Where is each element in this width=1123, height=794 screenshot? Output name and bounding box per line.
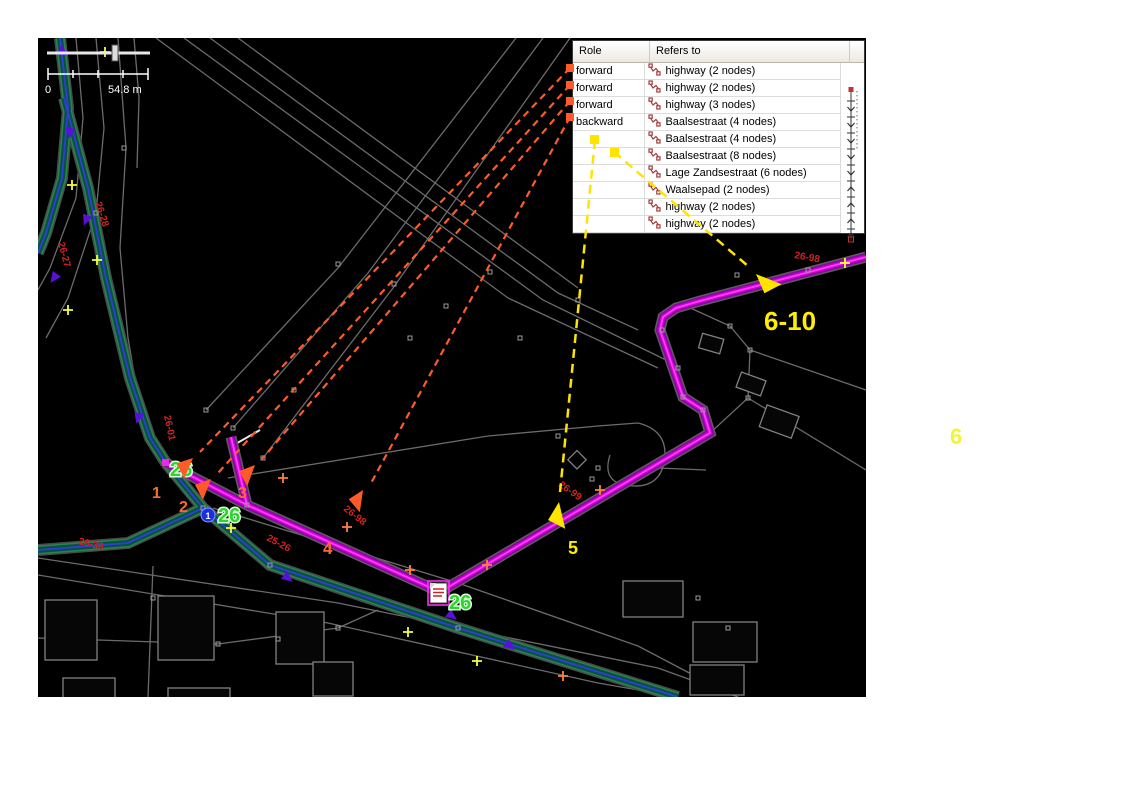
node-count-badge: 26: [449, 592, 471, 614]
member-row[interactable]: Lage Zandsestraat (6 nodes): [573, 165, 864, 182]
member-way-label: highway (2 nodes): [665, 82, 755, 94]
member-role-cell[interactable]: [573, 216, 645, 233]
member-row[interactable]: highway (2 nodes): [573, 199, 864, 216]
member-row[interactable]: Baalsestraat (8 nodes): [573, 148, 864, 165]
buildings-layer: [45, 333, 799, 697]
member-role-cell[interactable]: [573, 165, 645, 182]
way-ref-label: 26-99: [556, 479, 584, 503]
panel-header: Role Refers to: [573, 41, 864, 63]
column-header-role[interactable]: Role: [573, 41, 650, 62]
member-role-cell[interactable]: [573, 148, 645, 165]
node-count-badge: 26: [170, 459, 192, 481]
screenshot-stage: 1 0 54.8 m 26-0126-2826-2726-9825-2626-3…: [0, 0, 1123, 794]
way-icon: [648, 131, 661, 144]
step-label: 6-10: [764, 306, 816, 336]
member-way-cell[interactable]: highway (2 nodes): [645, 63, 841, 80]
step-label: 1: [152, 485, 161, 502]
member-row[interactable]: Waalsepad (2 nodes): [573, 182, 864, 199]
way-icon: [648, 182, 661, 195]
member-way-cell[interactable]: highway (2 nodes): [645, 80, 841, 97]
member-row[interactable]: highway (2 nodes): [573, 216, 864, 233]
member-role-cell[interactable]: forward: [573, 80, 645, 97]
member-way-cell[interactable]: Baalsestraat (8 nodes): [645, 148, 841, 165]
member-way-label: highway (3 nodes): [665, 99, 755, 111]
way-icon: [648, 114, 661, 127]
scale-distance-label: 54.8 m: [108, 84, 142, 96]
way-ref-label: 26-01: [161, 414, 177, 442]
member-row[interactable]: backwardBaalsestraat (4 nodes): [573, 114, 864, 131]
member-way-label: highway (2 nodes): [665, 218, 755, 230]
member-way-label: Baalsestraat (4 nodes): [665, 116, 776, 128]
note-icon[interactable]: [428, 581, 449, 605]
column-header-refers-to[interactable]: Refers to: [650, 41, 850, 62]
member-role-cell[interactable]: [573, 182, 645, 199]
member-way-label: Baalsestraat (4 nodes): [665, 133, 776, 145]
outside-step-label: 6: [950, 424, 962, 450]
member-way-label: Baalsestraat (8 nodes): [665, 150, 776, 162]
member-role-cell[interactable]: [573, 199, 645, 216]
junction-node-number: 1: [205, 511, 210, 521]
step-label: 5: [568, 538, 578, 558]
step-label: 2: [179, 499, 188, 516]
member-way-label: Waalsepad (2 nodes): [665, 184, 769, 196]
member-way-cell[interactable]: highway (2 nodes): [645, 199, 841, 216]
member-way-label: highway (2 nodes): [665, 65, 755, 77]
way-ref-label: 26-27: [55, 241, 72, 269]
way-icon: [648, 80, 661, 93]
member-way-label: Lage Zandsestraat (6 nodes): [665, 167, 806, 179]
relation-members-panel[interactable]: Role Refers to forwardhighway (2 nodes)f…: [572, 40, 865, 234]
member-row[interactable]: Baalsestraat (4 nodes): [573, 131, 864, 148]
node-count-badge: 26: [218, 505, 240, 527]
member-row[interactable]: forwardhighway (2 nodes): [573, 80, 864, 97]
member-way-cell[interactable]: Baalsestraat (4 nodes): [645, 114, 841, 131]
way-ref-label: 25-26: [265, 533, 293, 555]
way-icon: [648, 148, 661, 161]
member-role-cell[interactable]: [573, 131, 645, 148]
member-link-cell: [841, 63, 864, 80]
member-role-cell[interactable]: backward: [573, 114, 645, 131]
column-header-link: [850, 41, 864, 62]
way-icon: [648, 199, 661, 212]
way-icon: [648, 165, 661, 178]
selected-node-marker[interactable]: [162, 459, 169, 466]
member-row[interactable]: forwardhighway (3 nodes): [573, 97, 864, 114]
scale-zero-label: 0: [45, 84, 51, 96]
way-ref-label: 26-98: [341, 504, 368, 529]
member-way-cell[interactable]: Waalsepad (2 nodes): [645, 182, 841, 199]
member-row[interactable]: forwardhighway (2 nodes): [573, 63, 864, 80]
step-label: 3: [238, 485, 247, 502]
junction-node-marker[interactable]: 1: [201, 508, 215, 522]
member-rows: forwardhighway (2 nodes)forwardhighway (…: [573, 63, 864, 233]
member-role-cell[interactable]: forward: [573, 63, 645, 80]
member-way-cell[interactable]: highway (2 nodes): [645, 216, 841, 233]
member-link-column: [842, 85, 862, 245]
member-role-cell[interactable]: forward: [573, 97, 645, 114]
way-ref-label: 26-98: [793, 250, 821, 265]
member-way-label: highway (2 nodes): [665, 201, 755, 213]
member-way-cell[interactable]: highway (3 nodes): [645, 97, 841, 114]
member-way-cell[interactable]: Baalsestraat (4 nodes): [645, 131, 841, 148]
way-icon: [648, 216, 661, 229]
member-way-cell[interactable]: Lage Zandsestraat (6 nodes): [645, 165, 841, 182]
step-label: 4: [323, 539, 333, 558]
zoom-slider-handle[interactable]: [112, 45, 118, 61]
way-icon: [648, 97, 661, 110]
members-table[interactable]: forwardhighway (2 nodes)forwardhighway (…: [573, 63, 864, 233]
way-icon: [648, 63, 661, 76]
